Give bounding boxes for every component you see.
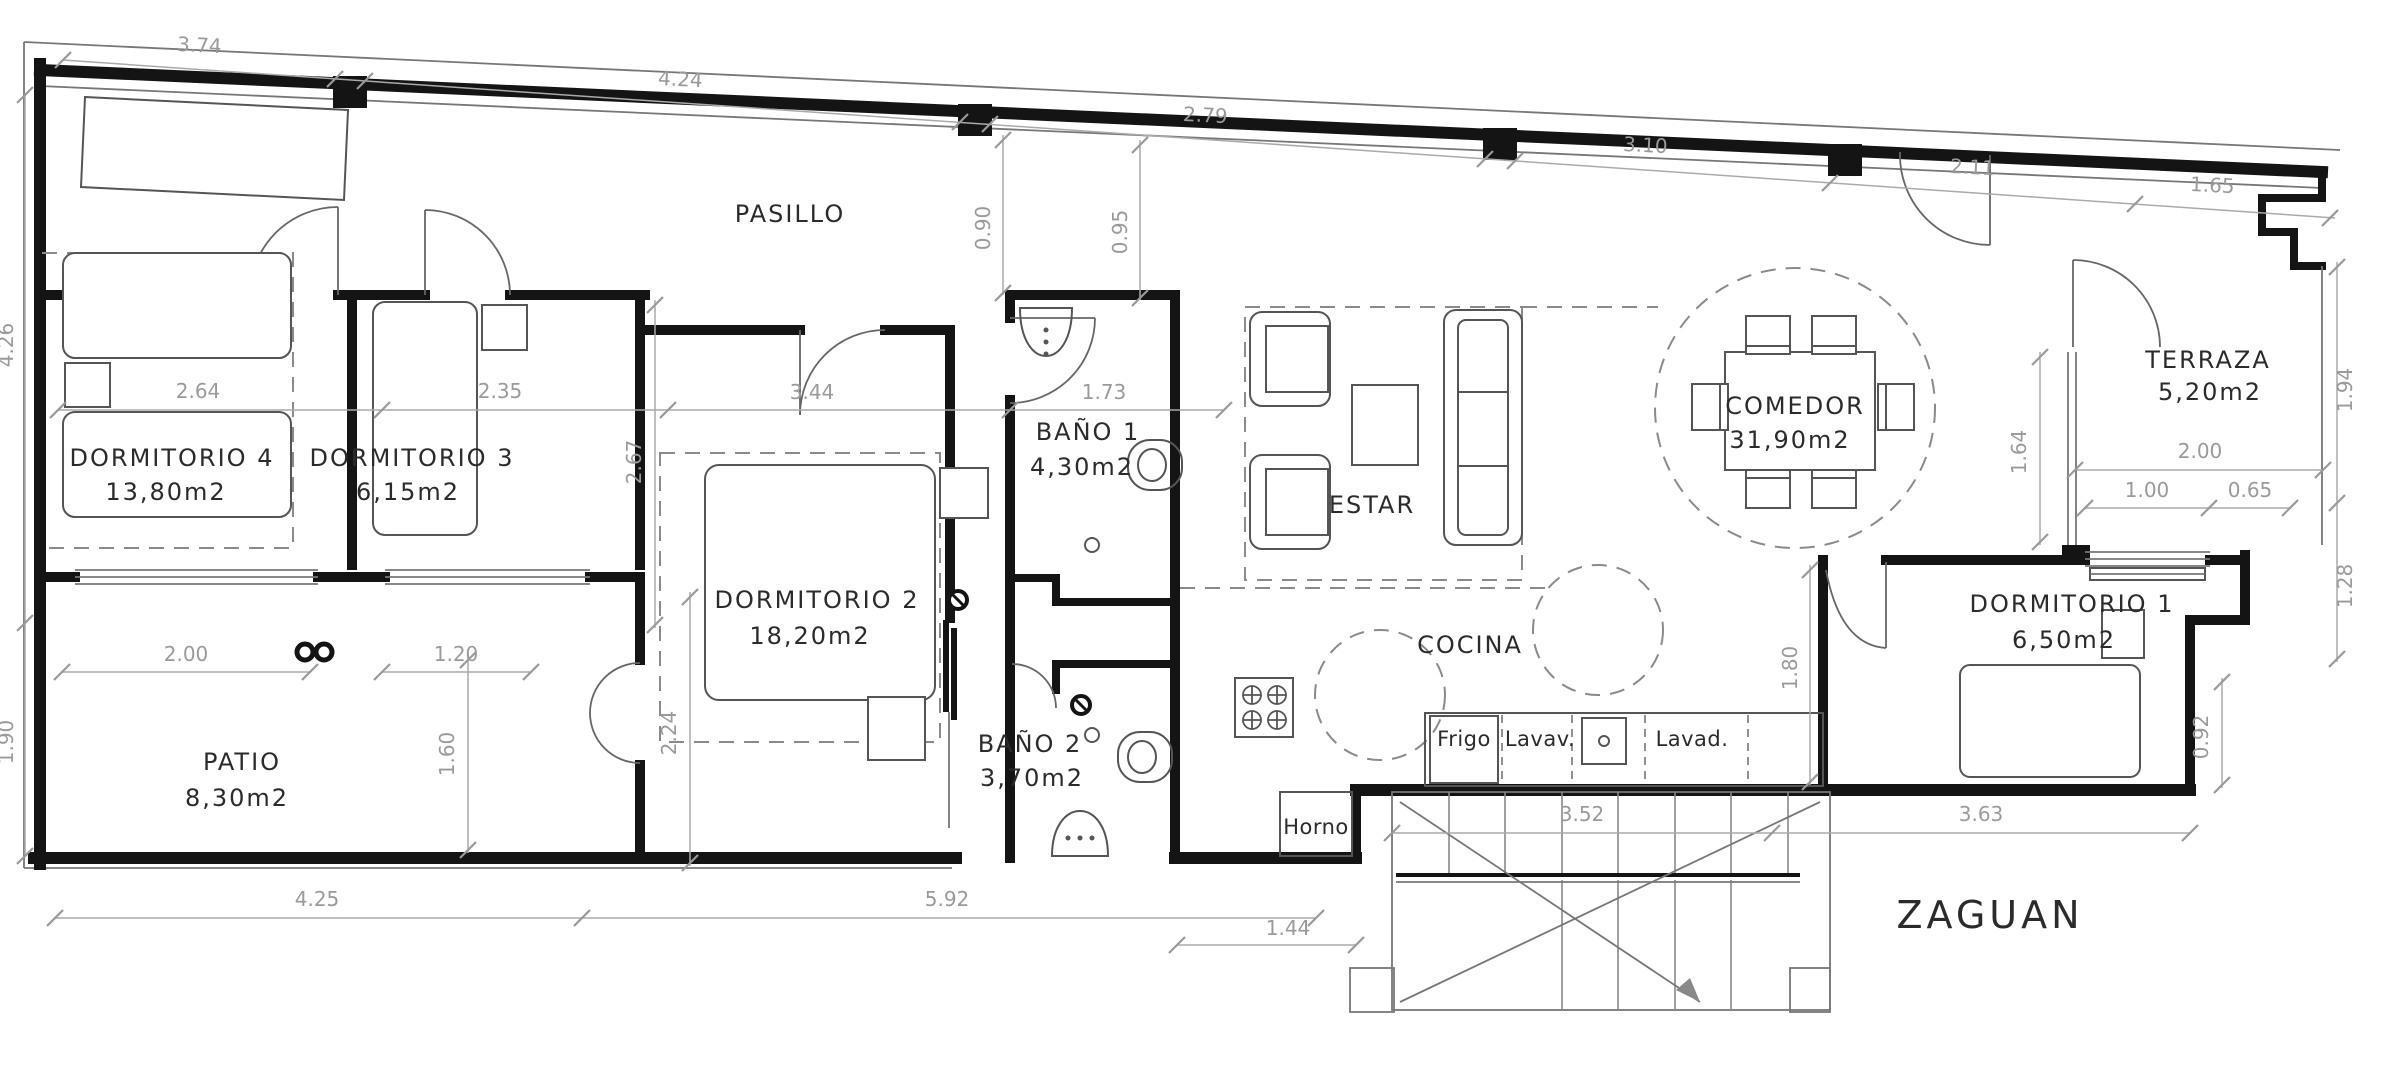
dim-065: 0.65 (2228, 478, 2273, 502)
dim-top-374: 3.74 (177, 32, 223, 58)
pillar (1828, 144, 1862, 176)
label-dormitorio3: DORMITORIO 3 (310, 444, 515, 472)
nightstand (940, 468, 988, 518)
wardrobe (81, 97, 348, 200)
dim-top-310: 3.10 (1623, 132, 1669, 158)
area-patio: 8,30m2 (185, 784, 289, 812)
area-bano2: 3,70m2 (980, 764, 1084, 792)
dim-patio-120: 1.20 (434, 642, 479, 666)
chair (1746, 470, 1790, 508)
side-table (868, 697, 925, 760)
dim-592: 5.92 (925, 887, 970, 911)
dorm1-window (2085, 552, 2210, 580)
kitchen-sink (1582, 718, 1626, 764)
dim-425: 4.25 (295, 887, 340, 911)
dim-180: 1.80 (1778, 646, 1802, 691)
dim-352: 3.52 (1560, 802, 1605, 826)
stove (1235, 678, 1293, 737)
area-dormitorio4: 13,80m2 (105, 478, 226, 506)
nightstand (65, 363, 110, 407)
area-comedor: 31,90m2 (1729, 426, 1850, 454)
label-estar: ESTAR (1329, 491, 1415, 519)
dim-095: 0.95 (1108, 210, 1132, 255)
dim-top-279: 2.79 (1183, 102, 1229, 128)
dim-144: 1.44 (1266, 916, 1311, 940)
coffee-table (1352, 385, 1418, 465)
bano2-door (1012, 664, 1056, 708)
toilet (1118, 732, 1172, 782)
stair-arrow (1676, 978, 1700, 1002)
doors (250, 152, 2160, 828)
dim-173: 1.73 (1082, 380, 1127, 404)
label-comedor: COMEDOR (1725, 392, 1865, 420)
dim-160: 1.60 (435, 732, 459, 777)
shutter-pivot (316, 644, 332, 660)
area-dormitorio1: 6,50m2 (2012, 626, 2116, 654)
label-cocina: COCINA (1417, 631, 1523, 659)
dim-top-424: 4.24 (658, 66, 704, 92)
dorm3-door (425, 210, 510, 295)
lock-icon (1072, 696, 1090, 714)
label-dormitorio1: DORMITORIO 1 (1970, 590, 2175, 618)
label-bano1: BAÑO 1 (1036, 416, 1141, 446)
shutter-pivot (297, 644, 313, 660)
label-pasillo: PASILLO (735, 200, 845, 228)
dim-344: 3.44 (790, 380, 835, 404)
dim-left-426: 4.26 (0, 323, 18, 368)
lock-icon (949, 591, 967, 609)
label-frigo: Frigo (1437, 727, 1491, 751)
dim-363: 3.63 (1959, 802, 2004, 826)
label-dormitorio4: DORMITORIO 4 (70, 444, 275, 472)
patio-double-door (590, 663, 640, 763)
dim-100: 1.00 (2125, 478, 2170, 502)
chair (1812, 470, 1856, 508)
chair (1878, 384, 1914, 430)
label-bano2: BAÑO 2 (978, 728, 1083, 758)
label-lavad: Lavad. (1656, 727, 1729, 751)
pier (1350, 968, 1394, 1012)
dim-235: 2.35 (478, 379, 523, 403)
label-lavav: Lavav. (1505, 727, 1575, 751)
dim-top-165: 1.65 (2190, 172, 2236, 198)
bed (1960, 665, 2140, 777)
terraza-window (2068, 352, 2076, 545)
dim-224: 2.24 (657, 711, 681, 756)
dim-092: 0.92 (2189, 715, 2213, 760)
label-dormitorio2: DORMITORIO 2 (715, 586, 920, 614)
area-dormitorio3: 6,15m2 (356, 478, 460, 506)
drain (1085, 728, 1099, 742)
dim-164: 1.64 (2007, 430, 2031, 475)
label-patio: PATIO (203, 748, 281, 776)
dim-patio-200: 2.00 (164, 642, 209, 666)
dorm1-door (1826, 562, 1886, 648)
dim-top-211: 2.11 (1950, 154, 1996, 180)
pier (1790, 968, 1830, 1012)
dim-090: 0.90 (971, 206, 995, 251)
bed (705, 465, 935, 700)
chair (1692, 384, 1728, 430)
label-terraza: TERRAZA (2144, 346, 2270, 374)
floorplan-drawing: 3.74 4.24 2.79 3.10 2.11 1.65 0.90 0.95 … (0, 0, 2382, 1091)
dorm3-window (385, 570, 590, 584)
sofa (1444, 310, 1522, 545)
chair (1812, 316, 1856, 354)
dim-194: 1.94 (2333, 368, 2357, 413)
terraza-door (2073, 260, 2160, 347)
sink (1052, 811, 1108, 856)
dim-267: 2.67 (622, 440, 646, 485)
label-zaguan: ZAGUAN (1896, 893, 2083, 937)
area-bano1: 4,30m2 (1030, 453, 1134, 481)
bed (63, 253, 291, 358)
area-dormitorio2: 18,20m2 (749, 622, 870, 650)
label-horno: Horno (1283, 815, 1349, 839)
drain (1085, 538, 1099, 552)
dim-terraza-200: 2.00 (2178, 439, 2223, 463)
dim-264: 2.64 (176, 379, 221, 403)
dorm4-window (75, 570, 318, 584)
sliding-door (946, 620, 954, 828)
area-terraza: 5,20m2 (2158, 378, 2262, 406)
nightstand (482, 305, 527, 350)
chair (1746, 316, 1790, 354)
floorplan-page: 3.74 4.24 2.79 3.10 2.11 1.65 0.90 0.95 … (0, 0, 2382, 1091)
burners (1243, 686, 1286, 729)
dim-128: 1.28 (2333, 564, 2357, 609)
dim-left-190: 1.90 (0, 720, 18, 765)
kitchen (1180, 565, 1823, 856)
